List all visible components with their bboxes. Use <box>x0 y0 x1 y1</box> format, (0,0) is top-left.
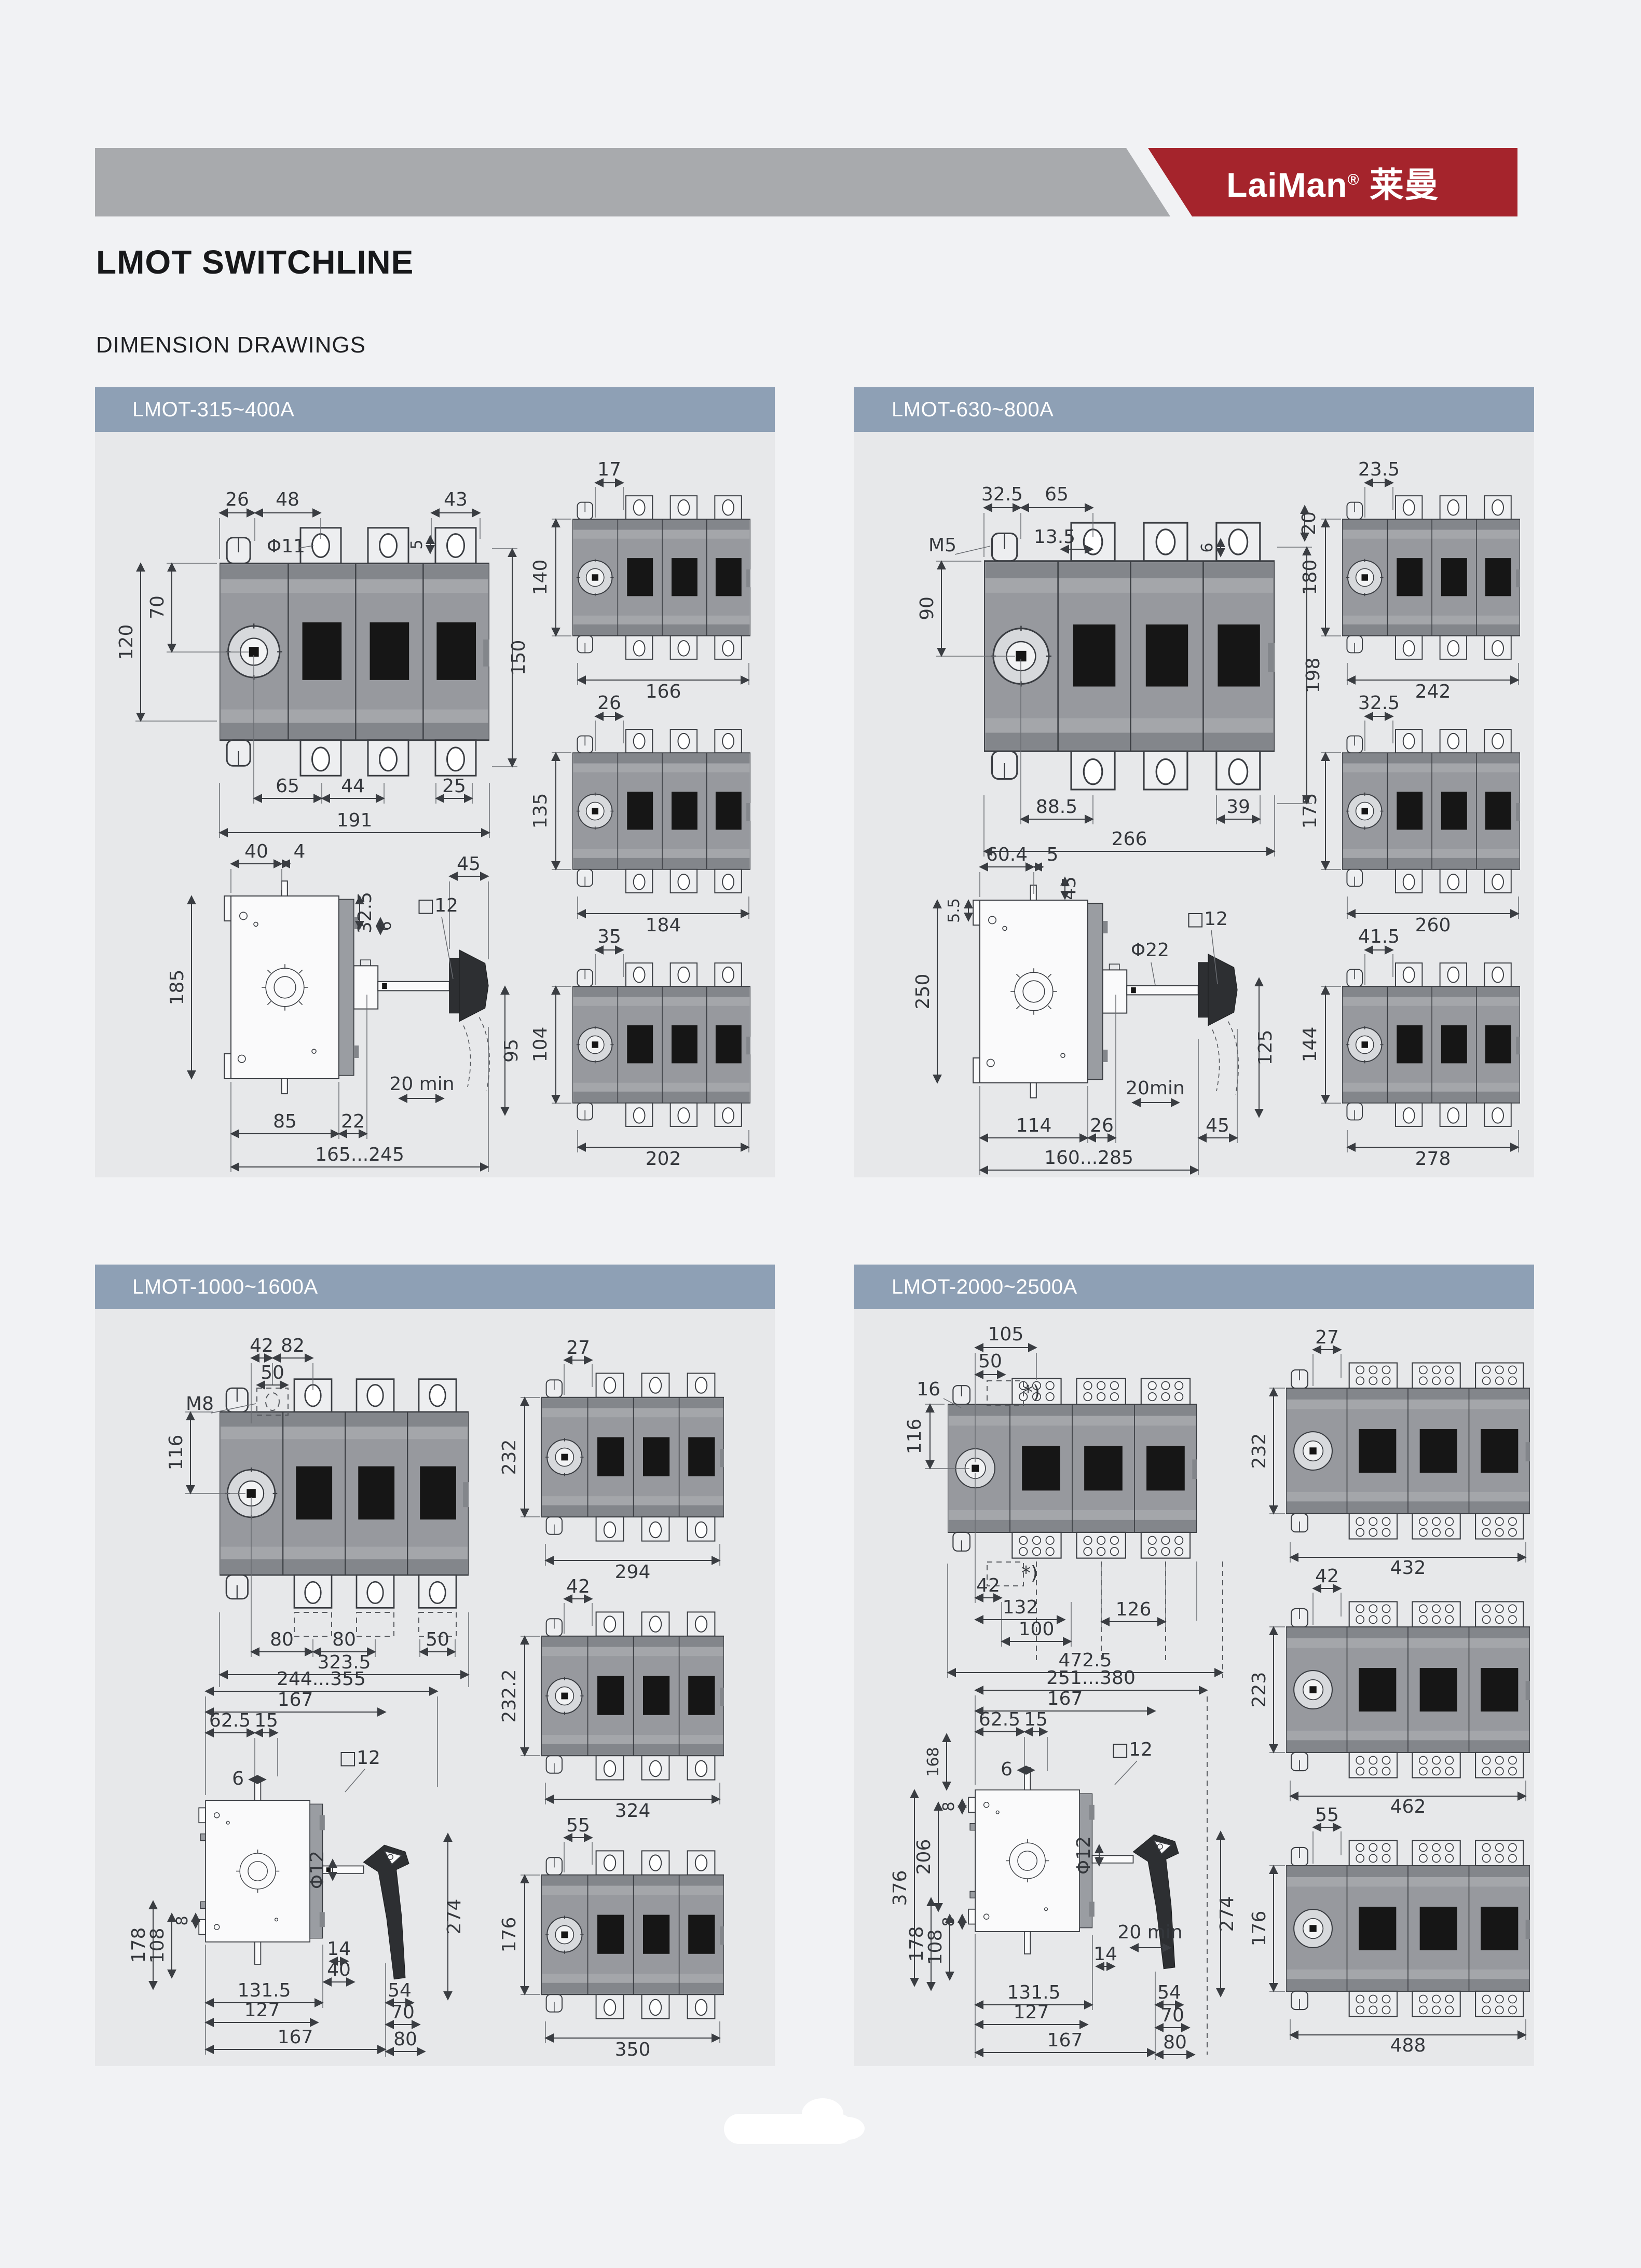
page-title: LMOT SWITCHLINE <box>96 243 414 281</box>
dim-label: 251...380 <box>1046 1667 1136 1689</box>
dim-label: 176 <box>1249 1911 1270 1947</box>
switch-rear-drawing <box>541 1373 724 1541</box>
dim-label: 176 <box>499 1917 520 1953</box>
dim-label: 108 <box>925 1930 946 1965</box>
dim-label: *) <box>1021 1563 1038 1584</box>
dim-label: 100 <box>1019 1619 1055 1640</box>
dim-label: 42 <box>250 1335 273 1356</box>
dim-label: 15 <box>254 1710 278 1731</box>
dim-label: 127 <box>1014 2002 1049 2023</box>
dim-label: 32.5 <box>1358 692 1400 714</box>
dim-label: □12 <box>1186 908 1228 930</box>
front-view: 105 50 16 116 42 132 100 126 472.5 *) *) <box>904 1324 1223 1678</box>
dim-label: 376 <box>890 1870 911 1906</box>
dim-label: 62.5 <box>209 1710 251 1731</box>
switch-side-drawing <box>199 1778 409 1979</box>
rear-views: 27 232 294 42 232.2 324 55 176 350 <box>499 1337 724 2060</box>
dim-label: 22 <box>341 1111 365 1132</box>
dim-label: 6 <box>1001 1759 1013 1780</box>
dim-label: 32.5 <box>981 484 1023 505</box>
dim-label: 462 <box>1390 1796 1426 1817</box>
dimension-drawing-630-800: 32.5 65 M5 13.5 6 20 90 198 88.5 39 266 … <box>854 432 1534 1177</box>
dim-label: 120 <box>116 624 137 660</box>
dim-label: 42 <box>1315 1566 1339 1587</box>
rear-view: 17 140 166 <box>530 459 750 702</box>
dim-label: 178 <box>128 1927 149 1963</box>
dim-label: 105 <box>988 1324 1024 1345</box>
dim-label: Φ11 <box>267 536 305 557</box>
switch-rear-drawing <box>572 963 750 1126</box>
dim-label: 150 <box>508 640 529 676</box>
panel-header: LMOT-315~400A <box>95 387 775 432</box>
dim-label: 104 <box>530 1027 551 1063</box>
switch-front-drawing <box>948 1378 1197 1558</box>
switch-rear-drawing <box>1286 1363 1530 1539</box>
dim-label: 232.2 <box>499 1669 520 1722</box>
dim-label: 32.5 <box>354 892 376 933</box>
dim-label: 54 <box>1157 1982 1181 2003</box>
panel-title: LMOT-315~400A <box>95 398 294 422</box>
dim-label: 14 <box>1093 1944 1117 1965</box>
dim-label: 266 <box>1112 829 1147 850</box>
rear-view: 27 232 294 <box>499 1337 724 1583</box>
switch-rear-drawing <box>541 1612 724 1780</box>
brand-logo: LaiMan® 莱曼 <box>1226 157 1439 207</box>
dim-label: 167 <box>278 2027 313 2048</box>
dim-label: 131.5 <box>237 1980 291 2001</box>
dim-label: 160...285 <box>1044 1147 1133 1169</box>
dim-label: 27 <box>1315 1327 1339 1348</box>
dim-label: 35 <box>597 926 621 947</box>
dim-label: 167 <box>278 1689 313 1710</box>
side-view: 60.4 5 5.5 45 Φ22 □12 250 20min 114 26 4… <box>912 844 1276 1175</box>
dim-label: 26 <box>1090 1115 1114 1136</box>
dim-label: 140 <box>530 560 551 595</box>
dim-label: Φ12 <box>307 1851 328 1889</box>
dim-label: 232 <box>1249 1433 1270 1469</box>
dim-label: 50 <box>426 1629 449 1650</box>
switch-rear-drawing <box>572 496 750 659</box>
dim-label: 50 <box>978 1351 1002 1372</box>
dim-label: Φ12 <box>1073 1836 1095 1875</box>
dim-label: 6 <box>377 921 395 931</box>
rear-view: 32.5 175 260 <box>1300 692 1520 936</box>
dim-label: 191 <box>337 810 373 831</box>
dim-label: 132 <box>1003 1597 1038 1618</box>
dim-label: 178 <box>906 1926 927 1962</box>
dimension-drawing-2000-2500: 105 50 16 116 42 132 100 126 472.5 *) *)… <box>854 1309 1534 2066</box>
dim-label: 41.5 <box>1358 926 1400 947</box>
dim-label: 131.5 <box>1007 1982 1060 2003</box>
dim-label: 54 <box>388 1980 412 2001</box>
dim-label: 5.5 <box>945 898 963 923</box>
switch-rear-drawing <box>1342 963 1520 1126</box>
rear-view: 55 176 488 <box>1249 1804 1530 2056</box>
dim-label: 6 <box>1198 542 1216 552</box>
dim-label: 180 <box>1300 560 1321 595</box>
dim-label: □12 <box>1111 1739 1153 1760</box>
dim-label: 198 <box>1303 658 1324 694</box>
dim-label: 39 <box>1226 796 1250 818</box>
dim-label: 5 <box>408 539 426 549</box>
dim-label: 488 <box>1390 2035 1426 2056</box>
rear-view: 41.5 144 278 <box>1300 926 1520 1170</box>
switch-rear-drawing <box>1286 1840 1530 2016</box>
rear-view: 42 223 462 <box>1249 1566 1530 1817</box>
rear-view: 26 135 184 <box>530 692 750 936</box>
dim-label: 40 <box>327 1959 351 1980</box>
side-view: 244...355 167 62.5 15 6 □12 Φ12 8 178 10… <box>128 1668 465 2057</box>
panel-title: LMOT-2000~2500A <box>854 1275 1077 1299</box>
panel-lmot-1000-1600: LMOT-1000~1600A 42 82 50 M8 116 80 80 50… <box>95 1265 775 2066</box>
dim-label: 185 <box>167 970 188 1006</box>
dim-label: 135 <box>530 793 551 829</box>
dim-label: 168 <box>924 1747 942 1776</box>
white-blob-decor <box>830 2117 865 2140</box>
dim-label: 232 <box>499 1439 520 1475</box>
dim-label: 250 <box>912 974 934 1010</box>
dim-label: 20 min <box>1117 1922 1182 1943</box>
switch-rear-drawing <box>572 729 750 893</box>
dim-label: 432 <box>1390 1557 1426 1579</box>
dim-label: 55 <box>1315 1804 1339 1826</box>
dim-label: *) <box>1023 1382 1040 1403</box>
registered-mark-icon: ® <box>1347 171 1359 188</box>
dim-label: 294 <box>615 1561 651 1583</box>
dim-label: 242 <box>1415 681 1451 702</box>
dim-label: 60.4 <box>986 844 1028 865</box>
dim-label: 166 <box>646 681 681 702</box>
switch-rear-drawing <box>541 1851 724 2018</box>
dim-label: 5 <box>1047 844 1059 865</box>
dim-label: 42 <box>566 1576 590 1597</box>
dim-label: 20 <box>1298 511 1320 535</box>
dim-label: 45 <box>457 853 481 875</box>
dim-label: 45 <box>1059 876 1080 900</box>
panel-lmot-630-800: LMOT-630~800A 32.5 65 M5 13.5 6 20 90 19… <box>854 387 1534 1177</box>
dim-label: 260 <box>1415 915 1451 936</box>
dim-label: 175 <box>1300 793 1321 829</box>
panel-lmot-315-400: LMOT-315~400A 26 48 43 Φ11 5 70 120 150 … <box>95 387 775 1177</box>
dim-label: 40 <box>244 841 268 862</box>
page-subtitle: DIMENSION DRAWINGS <box>96 332 366 358</box>
dim-label: 27 <box>566 1337 590 1359</box>
dim-label: M5 <box>928 535 956 556</box>
dim-label: 42 <box>976 1575 1000 1596</box>
dim-label: 116 <box>904 1419 925 1455</box>
dim-label: M8 <box>186 1393 214 1415</box>
dim-label: 43 <box>444 489 468 510</box>
rear-view: 23.5 180 242 <box>1300 459 1520 702</box>
dim-label: 95 <box>501 1039 522 1063</box>
dim-label: □12 <box>417 895 458 916</box>
panel-header: LMOT-630~800A <box>854 387 1534 432</box>
dim-label: 85 <box>273 1111 297 1132</box>
datasheet-page: LaiMan® 莱曼 LMOT SWITCHLINE DIMENSION DRA… <box>0 0 1641 2268</box>
dim-label: 62.5 <box>979 1709 1020 1730</box>
dim-label: 13.5 <box>1034 526 1075 548</box>
front-view: 32.5 65 M5 13.5 6 20 90 198 88.5 39 266 <box>917 484 1324 857</box>
brand-logo-cn: 莱曼 <box>1370 166 1439 204</box>
dim-label: 274 <box>1216 1896 1238 1932</box>
switch-rear-drawing <box>1342 496 1520 659</box>
dim-label: 26 <box>597 692 621 714</box>
rear-view: 35 104 202 <box>530 926 750 1170</box>
dim-label: 70 <box>1160 2005 1184 2026</box>
dim-label: 65 <box>276 776 299 797</box>
switch-rear-drawing <box>1342 729 1520 893</box>
top-decor-bar <box>95 148 1170 216</box>
dim-label: 167 <box>1047 2030 1083 2051</box>
dim-label: 23.5 <box>1358 459 1400 480</box>
dim-label: 50 <box>261 1362 284 1383</box>
dim-label: 278 <box>1415 1148 1451 1170</box>
dim-label: 8 <box>173 1916 192 1925</box>
dim-label: 90 <box>917 596 938 620</box>
dim-label: 126 <box>1116 1599 1152 1620</box>
dim-label: 244...355 <box>277 1668 366 1690</box>
dim-label: 202 <box>646 1148 681 1170</box>
dim-label: 80 <box>332 1629 356 1650</box>
dim-label: 88.5 <box>1036 796 1077 818</box>
rear-view: 55 176 350 <box>499 1815 724 2060</box>
switch-rear-drawing <box>1286 1601 1530 1777</box>
rear-views: 23.5 180 242 32.5 175 260 41.5 144 278 <box>1300 459 1520 1170</box>
side-view: 40 4 32.5 6 □12 45 185 20 min 95 85 22 1… <box>167 841 522 1172</box>
dim-label: 127 <box>244 2000 280 2021</box>
dim-label: 167 <box>1047 1688 1083 1709</box>
dim-label: 8 <box>940 1801 958 1811</box>
dim-label: 65 <box>1045 484 1069 505</box>
dim-label: 206 <box>913 1839 935 1875</box>
dim-label: 82 <box>281 1335 305 1356</box>
switch-front-drawing <box>220 1379 469 1608</box>
dim-label: 70 <box>391 2002 415 2023</box>
dim-label: 274 <box>444 1899 465 1935</box>
switch-front-drawing <box>220 528 489 776</box>
dim-label: □12 <box>339 1747 380 1769</box>
dim-label: 17 <box>597 459 621 480</box>
panel-lmot-2000-2500: LMOT-2000~2500A 105 50 16 116 42 132 100… <box>854 1265 1534 2066</box>
front-view: 26 48 43 Φ11 5 70 120 150 65 44 25 191 <box>116 489 529 838</box>
rear-view: 27 232 432 <box>1249 1327 1530 1579</box>
dim-label: 15 <box>1024 1709 1048 1730</box>
dimension-drawing-1000-1600: 42 82 50 M8 116 80 80 50 323.5 244...355… <box>95 1309 775 2066</box>
dim-label: 4 <box>294 841 306 862</box>
dim-label: 44 <box>341 776 365 797</box>
dim-label: 16 <box>917 1379 940 1400</box>
side-view: 251...380 167 62.5 15 168 6 □12 Φ12 8 20… <box>890 1667 1238 2060</box>
dimension-drawing-315-400: 26 48 43 Φ11 5 70 120 150 65 44 25 191 4… <box>95 432 775 1177</box>
dim-label: 114 <box>1016 1115 1052 1136</box>
dim-label: 165...245 <box>315 1144 404 1165</box>
front-view: 42 82 50 M8 116 80 80 50 323.5 <box>166 1335 469 1687</box>
dim-label: 350 <box>615 2039 651 2060</box>
switch-front-drawing <box>984 523 1275 790</box>
dim-label: 223 <box>1249 1672 1270 1708</box>
dim-label: 116 <box>166 1435 187 1471</box>
dim-label: 184 <box>646 915 681 936</box>
rear-views: 17 140 166 26 135 184 35 104 202 <box>530 459 750 1170</box>
dim-label: 55 <box>566 1815 590 1836</box>
rear-view: 42 232.2 324 <box>499 1576 724 1822</box>
dim-label: 48 <box>276 489 299 510</box>
dim-label: 14 <box>327 1938 351 1960</box>
dim-label: 144 <box>1300 1027 1321 1063</box>
dim-label: 26 <box>225 489 249 510</box>
dim-label: 6 <box>232 1768 244 1789</box>
panel-title: LMOT-1000~1600A <box>95 1275 318 1299</box>
panel-title: LMOT-630~800A <box>854 398 1054 422</box>
dim-label: 20 min <box>389 1074 454 1095</box>
dim-label: Φ22 <box>1131 940 1169 961</box>
dim-label: 8 <box>940 1917 958 1926</box>
dim-label: 80 <box>1163 2032 1187 2053</box>
dim-label: 45 <box>1206 1115 1229 1136</box>
panel-header: LMOT-2000~2500A <box>854 1265 1534 1309</box>
dim-label: 108 <box>147 1928 168 1964</box>
dim-label: 25 <box>442 776 466 797</box>
panel-header: LMOT-1000~1600A <box>95 1265 775 1309</box>
dim-label: 80 <box>393 2029 417 2050</box>
dim-label: 324 <box>615 1800 651 1822</box>
dim-label: 70 <box>147 595 168 619</box>
dim-label: 80 <box>270 1629 294 1650</box>
rear-views: 27 232 432 42 223 462 55 176 488 <box>1249 1327 1530 2056</box>
dim-label: 125 <box>1255 1030 1276 1066</box>
dim-label: 20min <box>1126 1078 1185 1099</box>
brand-banner: LaiMan® 莱曼 <box>1148 148 1517 216</box>
